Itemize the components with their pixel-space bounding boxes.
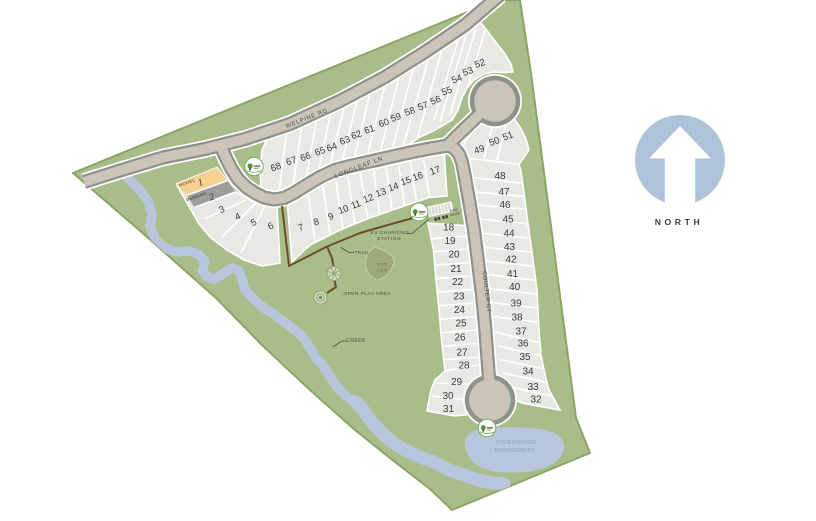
svg-text:45: 45 [502,215,514,226]
svg-text:41: 41 [507,269,519,280]
svg-text:TOT: TOT [377,262,387,267]
svg-text:18: 18 [443,223,455,234]
svg-text:33: 33 [527,382,539,393]
svg-text:20: 20 [448,250,460,261]
svg-text:39: 39 [510,299,522,310]
svg-text:47: 47 [498,187,510,198]
svg-text:28: 28 [458,361,470,372]
svg-text:19: 19 [444,236,456,247]
svg-text:MANAGEMENT: MANAGEMENT [495,448,536,454]
svg-text:26: 26 [454,333,466,344]
svg-text:OPEN PLAY AREA: OPEN PLAY AREA [343,291,391,297]
svg-text:48: 48 [494,171,506,182]
svg-text:24: 24 [454,305,466,316]
svg-text:34: 34 [522,367,534,378]
svg-text:21: 21 [450,264,462,275]
svg-text:46: 46 [499,200,511,211]
svg-text:CREEK: CREEK [346,338,365,344]
svg-text:STATION: STATION [377,236,401,242]
svg-text:40: 40 [509,282,521,293]
svg-text:STORMWATER: STORMWATER [496,440,536,446]
svg-text:27: 27 [456,348,468,359]
svg-text:EV CHARGING: EV CHARGING [371,230,410,236]
svg-text:43: 43 [504,242,516,253]
svg-text:NORTH: NORTH [655,217,704,227]
svg-text:23: 23 [453,292,465,303]
svg-text:22: 22 [452,277,464,288]
svg-text:LOT: LOT [377,268,387,273]
svg-text:32: 32 [530,395,542,406]
svg-text:25: 25 [455,319,467,330]
svg-text:31: 31 [443,404,455,415]
svg-text:TRAIL: TRAIL [355,250,370,255]
svg-text:35: 35 [519,352,531,363]
svg-text:30: 30 [442,391,454,402]
svg-text:38: 38 [511,313,523,324]
svg-text:37: 37 [515,327,527,338]
svg-text:36: 36 [517,339,529,350]
svg-text:29: 29 [451,377,463,388]
svg-text:42: 42 [505,255,517,266]
svg-text:44: 44 [503,229,515,240]
